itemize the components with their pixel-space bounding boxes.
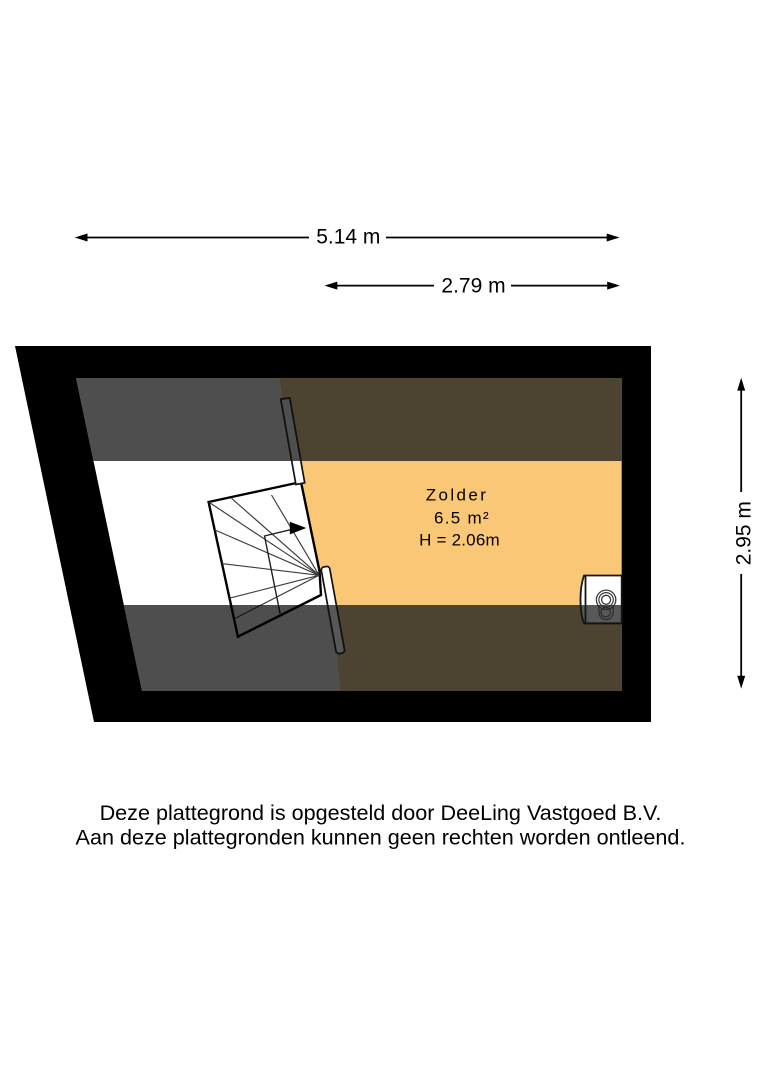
svg-text:2.95 m: 2.95 m — [733, 501, 756, 565]
svg-text:6.5 m²: 6.5 m² — [434, 508, 490, 527]
svg-text:Aan deze plattegronden kunnen: Aan deze plattegronden kunnen geen recht… — [76, 825, 686, 850]
svg-text:H = 2.06m: H = 2.06m — [419, 531, 500, 550]
svg-text:Zolder: Zolder — [426, 486, 489, 505]
svg-text:5.14 m: 5.14 m — [316, 226, 380, 249]
svg-text:Deze plattegrond is opgesteld: Deze plattegrond is opgesteld door DeeLi… — [100, 800, 662, 825]
svg-text:2.79 m: 2.79 m — [441, 275, 505, 298]
